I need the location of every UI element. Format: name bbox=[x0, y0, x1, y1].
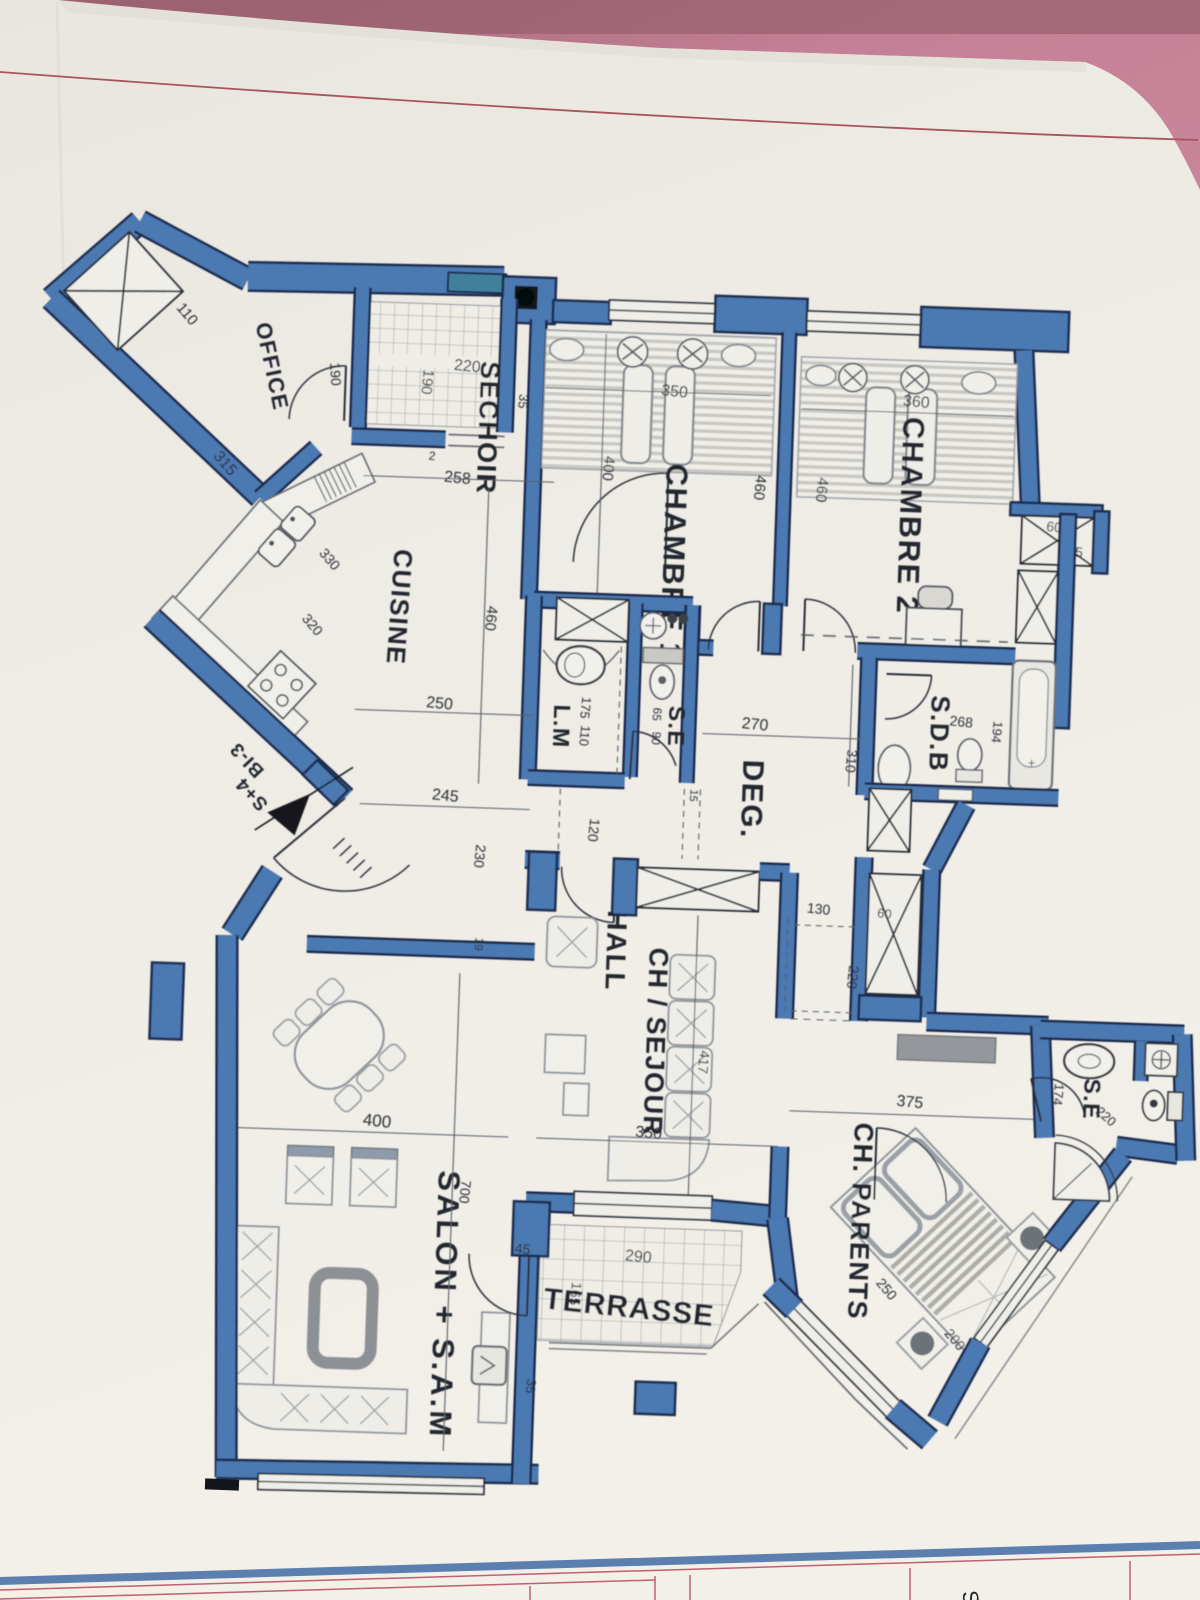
svg-text:CHAMBRE 2: CHAMBRE 2 bbox=[890, 416, 932, 615]
svg-text:245: 245 bbox=[431, 786, 459, 806]
svg-text:L.M: L.M bbox=[548, 704, 576, 749]
svg-text:SECHOIR: SECHOIR bbox=[471, 361, 506, 495]
svg-text:270: 270 bbox=[741, 715, 769, 735]
svg-text:DEG.: DEG. bbox=[734, 759, 770, 839]
svg-text:S.E: S.E bbox=[663, 705, 690, 747]
svg-text:130: 130 bbox=[806, 900, 831, 918]
svg-text:19: 19 bbox=[471, 937, 486, 952]
svg-text:400: 400 bbox=[362, 1110, 392, 1132]
svg-text:190: 190 bbox=[417, 369, 437, 396]
svg-text:460: 460 bbox=[750, 474, 770, 501]
svg-text:310: 310 bbox=[842, 749, 860, 774]
svg-text:15: 15 bbox=[687, 789, 700, 802]
svg-text:120: 120 bbox=[585, 818, 603, 843]
svg-text:175: 175 bbox=[577, 696, 594, 719]
svg-text:174: 174 bbox=[1050, 1083, 1067, 1106]
svg-text:35: 35 bbox=[523, 1378, 539, 1394]
svg-text:360: 360 bbox=[902, 392, 930, 412]
svg-text:350: 350 bbox=[635, 1124, 663, 1144]
svg-text:60: 60 bbox=[877, 905, 893, 921]
svg-text:290: 290 bbox=[624, 1247, 652, 1267]
svg-text:375: 375 bbox=[896, 1093, 924, 1113]
svg-text:110: 110 bbox=[576, 725, 593, 747]
svg-text:700: 700 bbox=[456, 1179, 474, 1204]
svg-text:+: + bbox=[1028, 755, 1036, 770]
svg-text:165: 165 bbox=[567, 1281, 585, 1306]
svg-text:268: 268 bbox=[949, 712, 974, 730]
svg-text:45: 45 bbox=[514, 1240, 531, 1258]
svg-text:220: 220 bbox=[453, 357, 481, 377]
svg-text:65: 65 bbox=[649, 707, 664, 722]
svg-text:230: 230 bbox=[471, 844, 489, 869]
svg-text:S.D.B: S.D.B bbox=[923, 695, 956, 773]
svg-text:417: 417 bbox=[695, 1050, 713, 1075]
svg-text:250: 250 bbox=[425, 694, 453, 714]
svg-text:220: 220 bbox=[844, 965, 862, 990]
svg-text:460: 460 bbox=[812, 477, 832, 504]
svg-text:194: 194 bbox=[989, 721, 1006, 744]
